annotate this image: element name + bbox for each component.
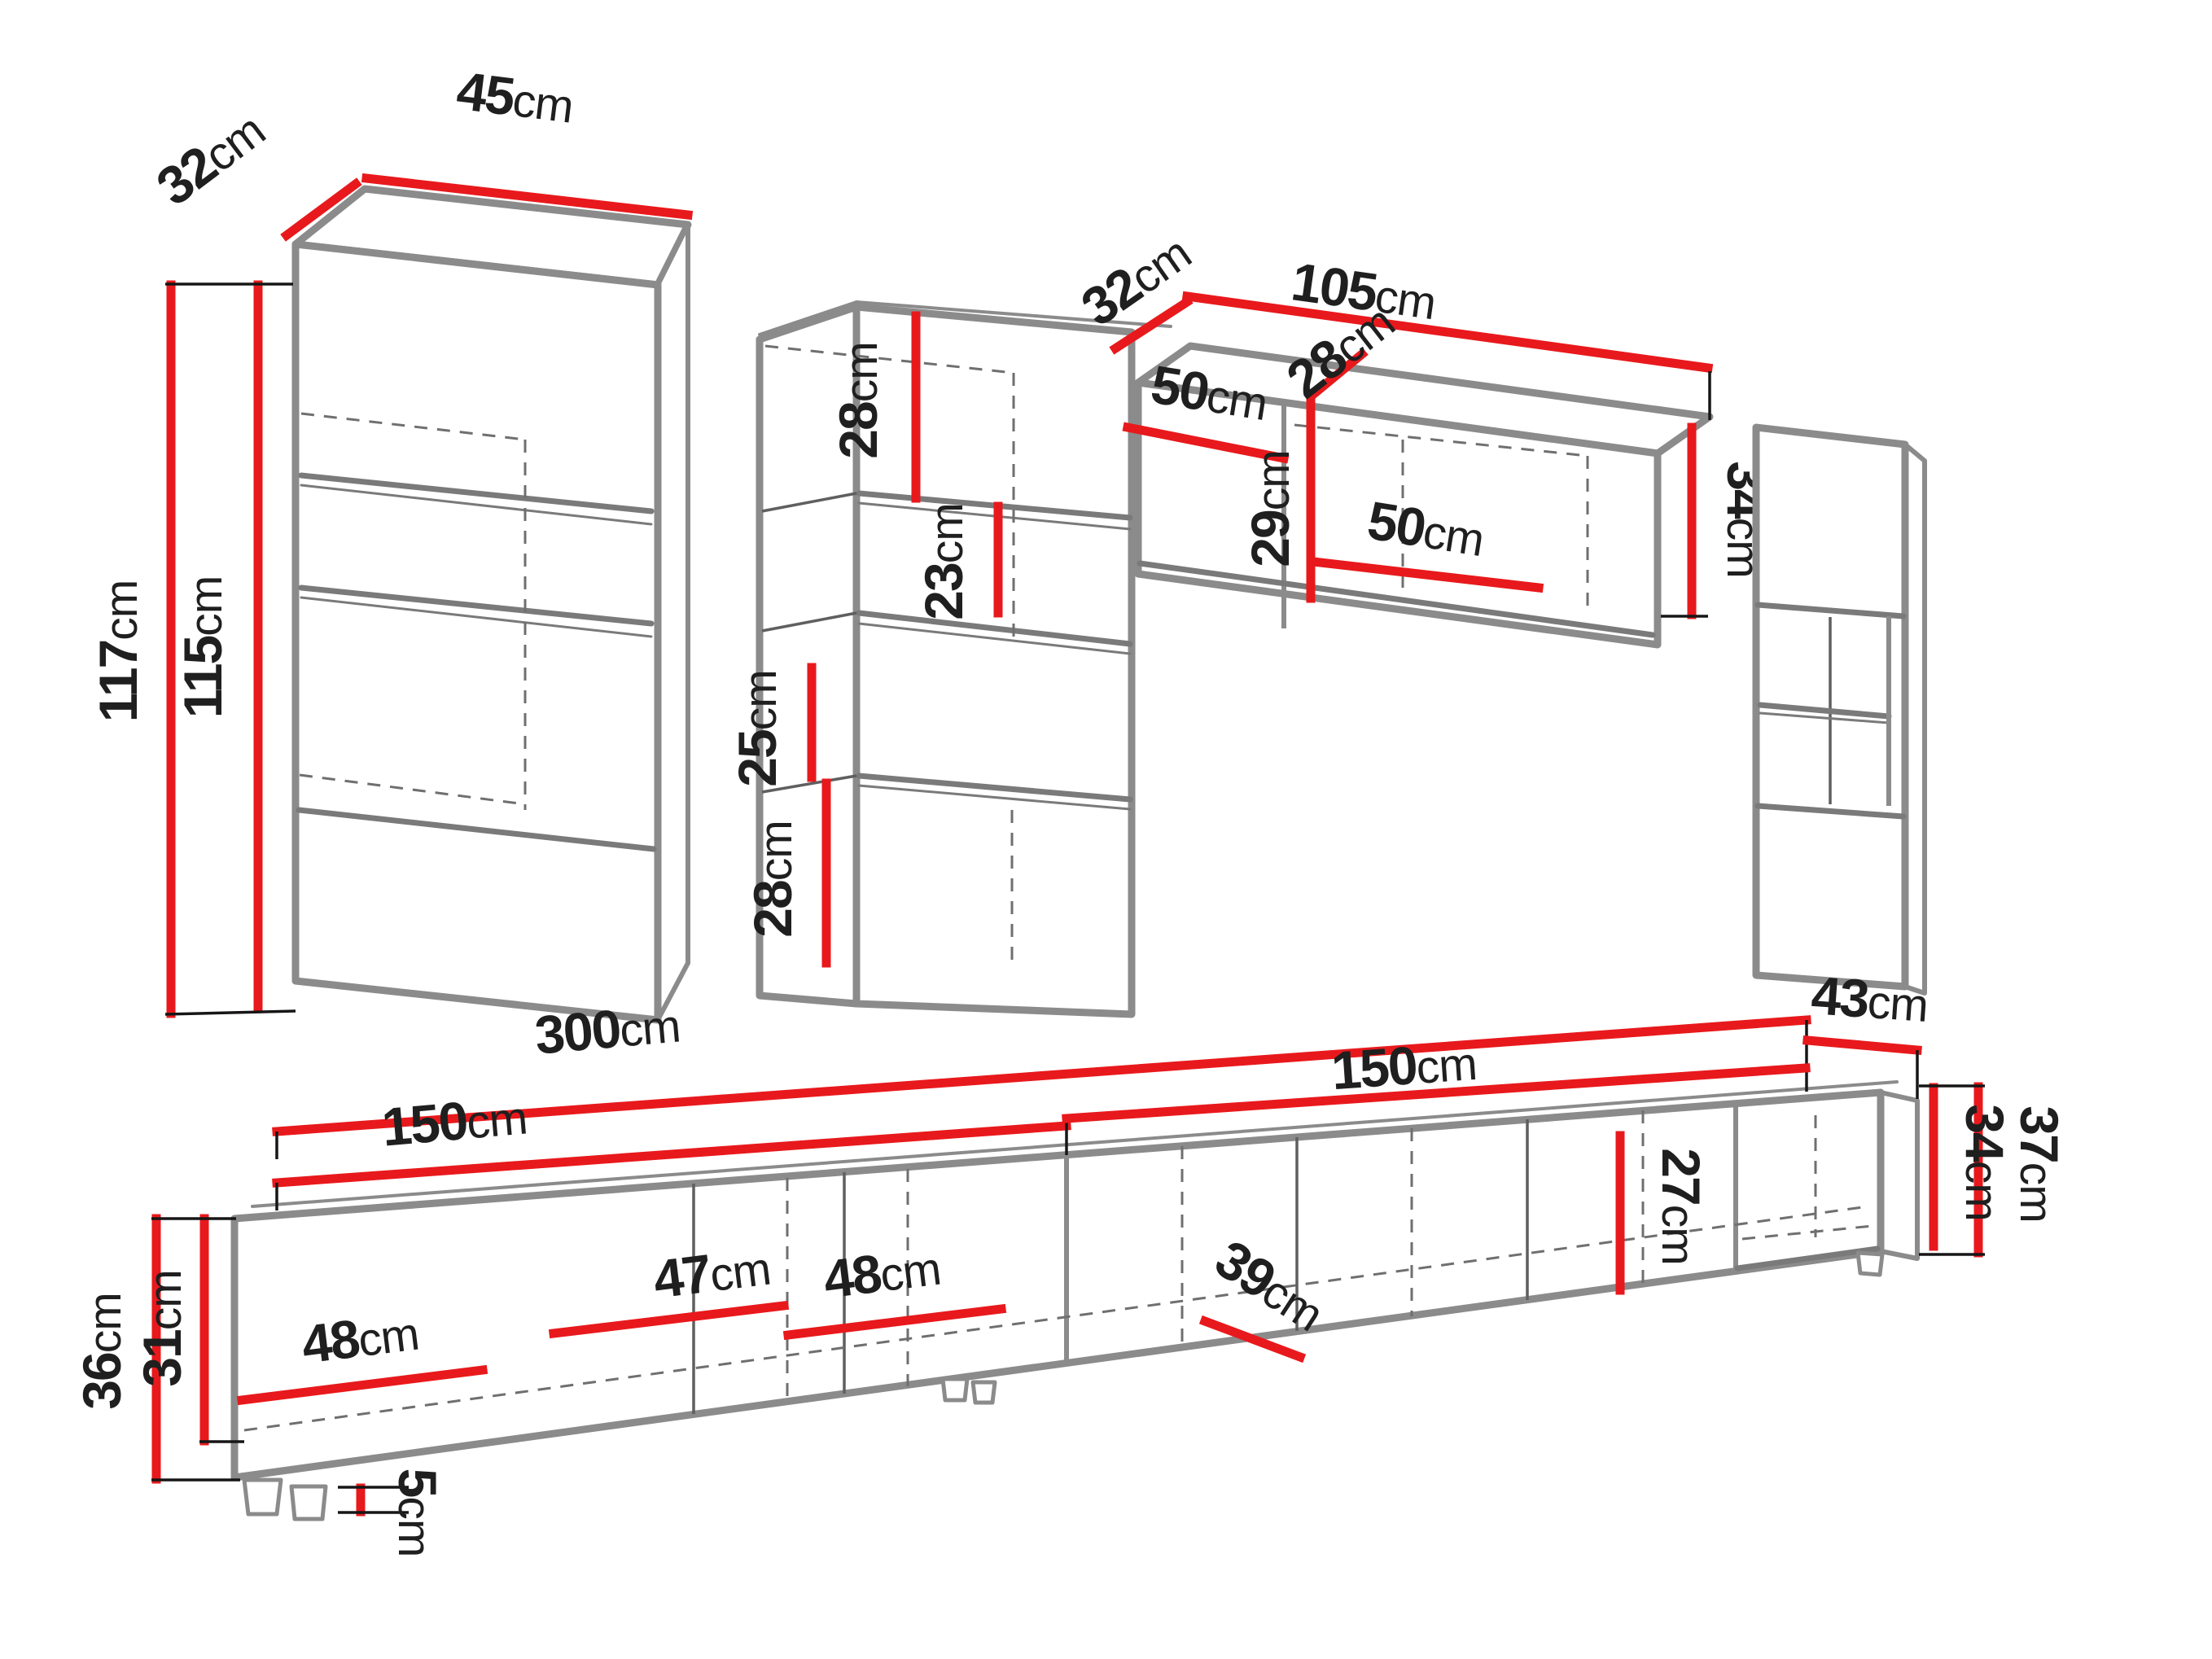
dim-label-middle-gap-lower: 25cm	[727, 670, 787, 786]
dim-label-right-height-inner: 34cm	[1955, 1104, 2015, 1220]
left-cabinet-side-face	[658, 225, 688, 1020]
dim-label-middle-gap-upper: 23cm	[913, 503, 974, 619]
dim-label-left-height-inner: 31cm	[132, 1270, 192, 1386]
right-cabinet	[1756, 427, 1925, 993]
dimension-diagram: 32cm 45cm 117cm 115cm 28cm 23cm 25cm 28c…	[0, 0, 2212, 1659]
dim-label-leg-height: 5cm	[388, 1469, 448, 1557]
middle-cabinet-front-face	[856, 307, 1132, 1014]
dim-label-inner-height: 27cm	[1651, 1148, 1711, 1264]
dim-label-right-height-outer: 37cm	[2009, 1105, 2070, 1222]
diagram-canvas: 32cm 45cm 117cm 115cm 28cm 23cm 25cm 28c…	[0, 0, 2212, 1659]
tv-stand: 300cm 150cm 150cm 43cm 36cm 31cm 37cm 34…	[72, 965, 2070, 1556]
dim-label-left-height-inner: 115cm	[173, 576, 233, 718]
tv-stand-foot-mid-a	[943, 1379, 967, 1400]
tv-stand-foot-mid-b	[973, 1382, 995, 1403]
dim-label-left-half: 150cm	[379, 1084, 529, 1157]
tv-stand-foot-left-b	[291, 1486, 326, 1519]
middle-cabinet: 28cm 23cm 25cm 28cm	[727, 302, 1171, 1014]
tv-stand-foot-right	[1858, 1253, 1882, 1275]
dim-label-middle-bottom-section: 28cm	[742, 821, 803, 937]
dim-label-left-width: 45cm	[453, 60, 576, 134]
tv-stand-foot-left-a	[244, 1480, 281, 1514]
dim-label-total-width: 300cm	[532, 992, 682, 1065]
left-cabinet: 32cm 45cm 117cm 115cm	[88, 60, 688, 1020]
dim-label-left-height-outer: 117cm	[88, 580, 148, 722]
dim-label-top-inner-height: 29cm	[1240, 450, 1300, 567]
tick	[165, 1011, 296, 1014]
tv-stand-side-face	[1881, 1092, 1917, 1258]
dim-line-depth	[1807, 1040, 1917, 1050]
tv-stand-front-face	[234, 1092, 1881, 1477]
top-cabinet: 32cm 105cm 50cm 28cm 29cm 50cm 34cm	[1071, 221, 1776, 645]
dim-label-right-half: 150cm	[1329, 1031, 1478, 1101]
dim-label-left-depth: 32cm	[146, 98, 275, 217]
dim-label-middle-top-section: 28cm	[828, 342, 888, 458]
dim-label-left-height-outer: 36cm	[72, 1293, 132, 1409]
